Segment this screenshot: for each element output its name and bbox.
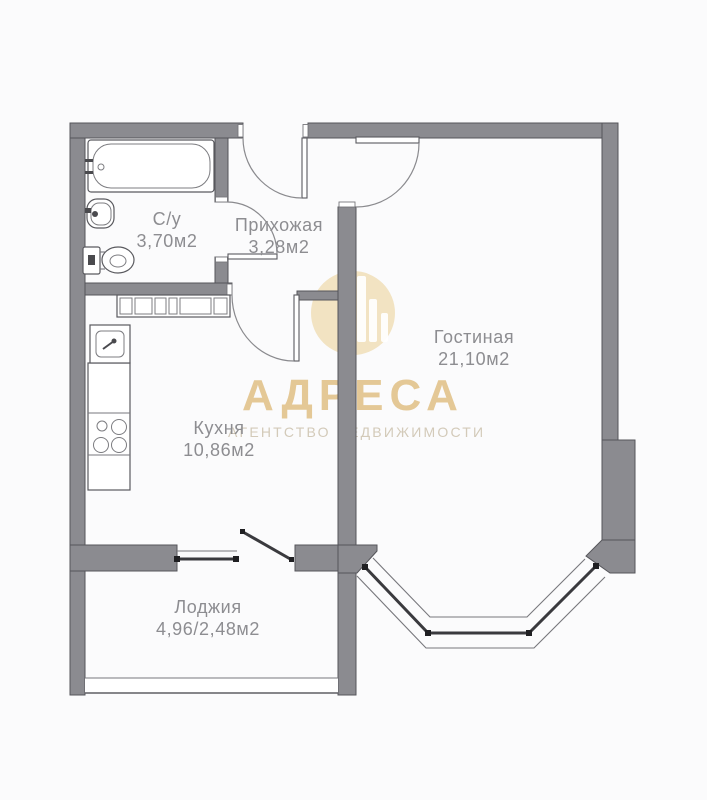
loggia-glass-band xyxy=(85,678,338,693)
room-label-living-room: Гостиная 21,10м2 xyxy=(409,326,539,370)
glazing-end xyxy=(425,630,431,636)
kitchen-door-leaf xyxy=(294,295,299,361)
jamb-bathroom-top xyxy=(216,197,228,202)
entrance-door xyxy=(243,138,307,198)
door-jambs xyxy=(216,125,356,296)
room-area: 3,28м2 xyxy=(214,236,344,258)
balcony-door xyxy=(240,529,294,562)
living-room-door xyxy=(356,137,419,207)
living-room-door-leaf xyxy=(356,137,419,143)
bathtub xyxy=(85,140,214,192)
bathtub-outer xyxy=(88,140,214,192)
bathtub-tap-bottom xyxy=(85,171,93,174)
bathtub-tap-top xyxy=(85,159,93,162)
wall-top-left xyxy=(70,123,243,138)
room-area: 3,70м2 xyxy=(102,230,232,252)
living-room-door-swing xyxy=(356,143,419,207)
room-label-kitchen: Кухня 10,86м2 xyxy=(154,417,284,461)
bay-glazing xyxy=(365,566,596,633)
room-area: 21,10м2 xyxy=(409,348,539,370)
toilet-flush xyxy=(88,255,95,265)
room-name: Лоджия xyxy=(143,596,273,618)
wall-loggia-top-left xyxy=(70,545,177,571)
balcony-door-hinge xyxy=(289,557,294,562)
room-name: Прихожая xyxy=(214,214,344,236)
wall-kitchen-stub xyxy=(297,291,338,300)
room-label-loggia: Лоджия 4,96/2,48м2 xyxy=(143,596,273,640)
room-label-hallway: Прихожая 3,28м2 xyxy=(214,214,344,258)
wall-living-room-left xyxy=(338,207,356,695)
room-area: 10,86м2 xyxy=(154,439,284,461)
room-area: 4,96/2,48м2 xyxy=(143,618,273,640)
floor-plan-drawing xyxy=(0,0,707,800)
wall-bathroom-right-upper xyxy=(215,138,228,202)
loggia-window xyxy=(174,551,239,562)
glazing-end xyxy=(174,556,180,562)
wall-exterior-left xyxy=(70,123,85,695)
glazing-end xyxy=(233,556,239,562)
jamb-entrance-right xyxy=(303,125,308,138)
bay-outer-line xyxy=(357,576,605,648)
kitchen-door xyxy=(232,295,299,361)
kitchen-door-swing xyxy=(232,295,294,361)
room-label-bathroom: С/у 3,70м2 xyxy=(102,208,232,252)
bay-window xyxy=(357,558,605,648)
jamb-entrance-left xyxy=(238,125,243,138)
jamb-kitchen-left xyxy=(227,284,232,295)
counter-column xyxy=(88,363,130,490)
kitchen-sink xyxy=(90,325,130,363)
jamb-living-room-bottom xyxy=(339,202,355,207)
wall-left-bay-corner xyxy=(338,545,377,573)
glazing-end xyxy=(526,630,532,636)
balcony-door-hinge xyxy=(240,529,245,534)
sink-tap xyxy=(85,208,91,213)
sink-faucet xyxy=(92,211,98,217)
wall-loggia-top-right xyxy=(295,545,338,571)
balcony-door-leaf xyxy=(243,532,292,560)
entrance-door-swing xyxy=(243,138,302,198)
wall-exterior-right-lower xyxy=(602,440,635,540)
wall-top-right xyxy=(308,123,618,138)
room-name: Гостиная xyxy=(409,326,539,348)
glazing-end xyxy=(593,563,599,569)
loggia-glazing xyxy=(85,678,338,693)
wall-bathroom-bottom xyxy=(85,283,232,295)
room-name: Кухня xyxy=(154,417,284,439)
entrance-door-leaf xyxy=(302,138,307,198)
kitchen-sink-faucet xyxy=(112,339,117,344)
wall-exterior-right-upper xyxy=(602,123,618,440)
floor-plan-page: АДРЕСА АГЕНТСТВО НЕДВИЖИМОСТИ xyxy=(0,0,707,800)
glazing-end xyxy=(362,564,368,570)
room-name: С/у xyxy=(102,208,232,230)
